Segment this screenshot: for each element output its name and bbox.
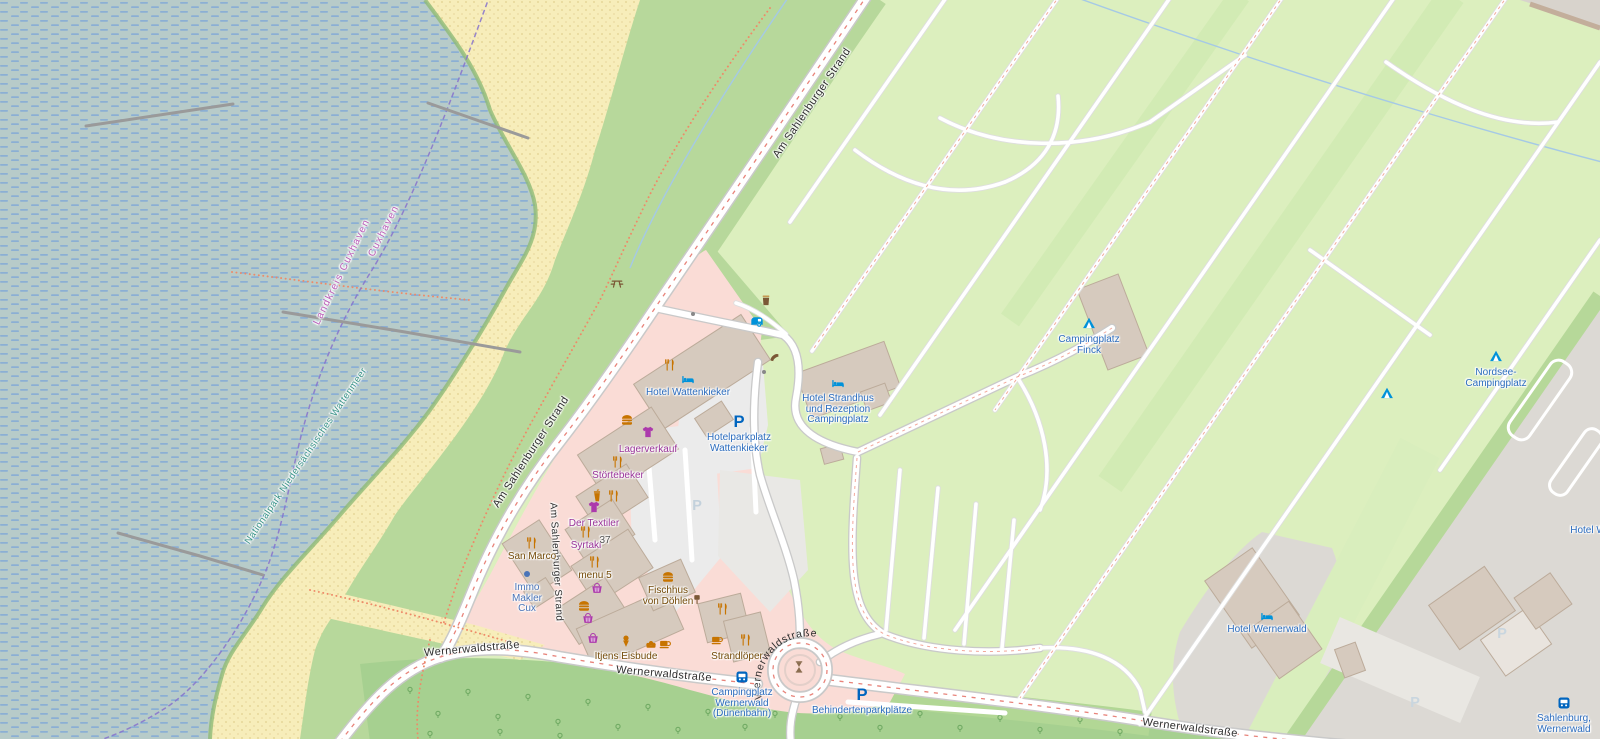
map-canvas[interactable] bbox=[0, 0, 1600, 739]
map-viewport[interactable]: Wernerwaldstraße Am Sahlenburger StrandA… bbox=[0, 0, 1600, 739]
